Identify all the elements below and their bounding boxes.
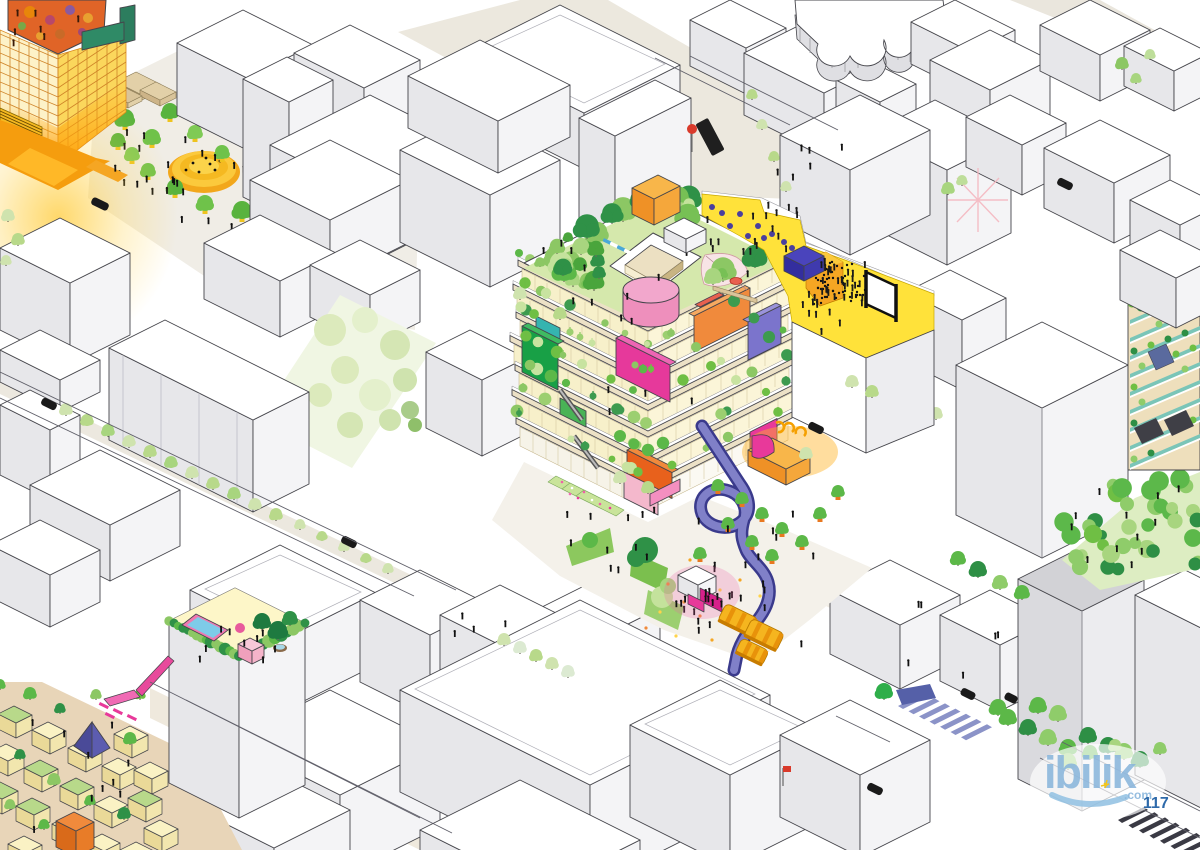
svg-text:117: 117 (1143, 795, 1169, 812)
